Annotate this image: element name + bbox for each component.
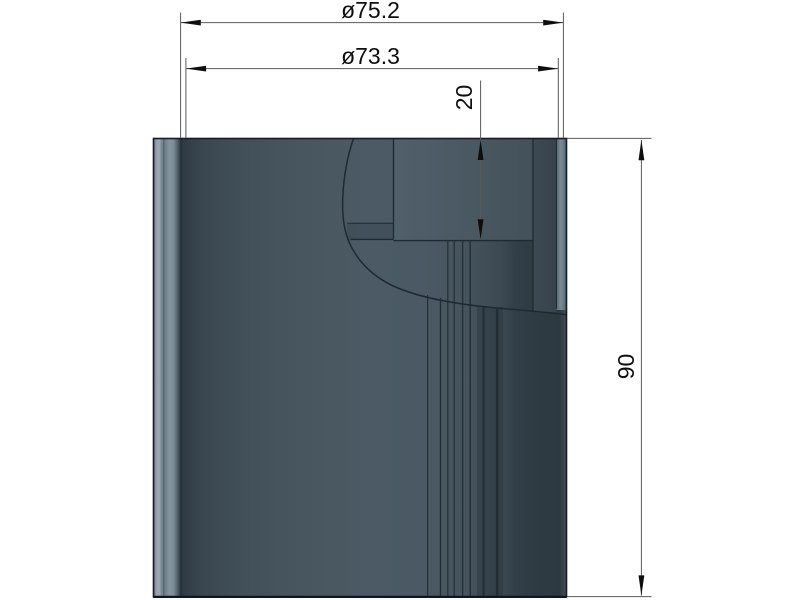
arrowhead-right [543, 20, 563, 26]
dimension-label-depth-20: 20 [451, 85, 477, 111]
arrowhead-right [538, 66, 558, 72]
dimension-label-dia-73-3: ø73.3 [341, 43, 400, 69]
dimension-dia-73-3: ø73.3 [186, 43, 558, 138]
part-step-strip [347, 224, 394, 241]
arrowhead-left [186, 66, 206, 72]
arrowhead-up [639, 140, 645, 160]
part-3d-view [154, 139, 567, 598]
arrowhead-down [639, 575, 645, 595]
dimension-label-height-90: 90 [613, 354, 639, 380]
part-right-panel [533, 139, 557, 313]
cad-drawing-svg: ø75.2 ø73.3 20 90 [0, 0, 800, 600]
part-step-face [394, 139, 534, 241]
arrowhead-left [181, 20, 201, 26]
cad-drawing-canvas: ø75.2 ø73.3 20 90 [0, 0, 800, 600]
dimension-label-dia-75-2: ø75.2 [341, 0, 400, 23]
part-shadow-band [477, 307, 503, 597]
part-rim-highlight-band [557, 139, 567, 311]
dimension-height-90: 90 [567, 138, 652, 596]
